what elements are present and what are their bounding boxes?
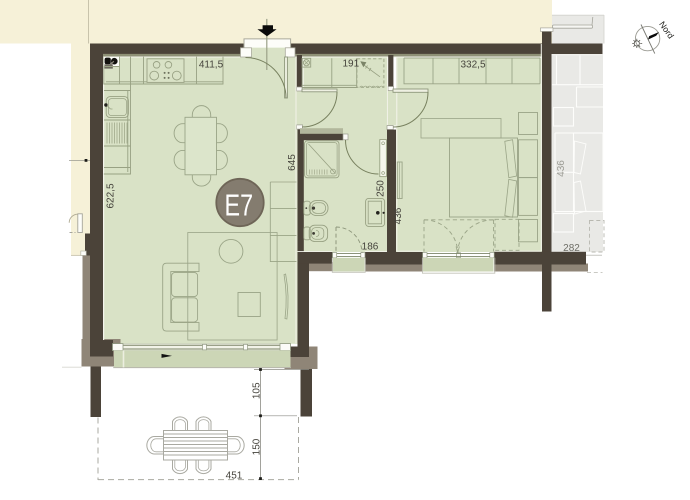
svg-text:645: 645 xyxy=(287,154,298,171)
svg-text:250: 250 xyxy=(375,180,386,197)
svg-text:436: 436 xyxy=(556,160,567,177)
svg-text:186: 186 xyxy=(362,242,379,253)
svg-text:105: 105 xyxy=(251,382,262,399)
svg-text:282: 282 xyxy=(563,243,580,254)
svg-text:191: 191 xyxy=(342,59,359,70)
svg-text:411,5: 411,5 xyxy=(199,60,224,71)
svg-text:E7: E7 xyxy=(225,187,254,222)
svg-text:332,5: 332,5 xyxy=(460,60,485,71)
svg-text:622,5: 622,5 xyxy=(106,183,117,208)
svg-text:150: 150 xyxy=(251,438,262,455)
svg-text:451: 451 xyxy=(226,471,243,482)
svg-text:436: 436 xyxy=(393,207,404,224)
